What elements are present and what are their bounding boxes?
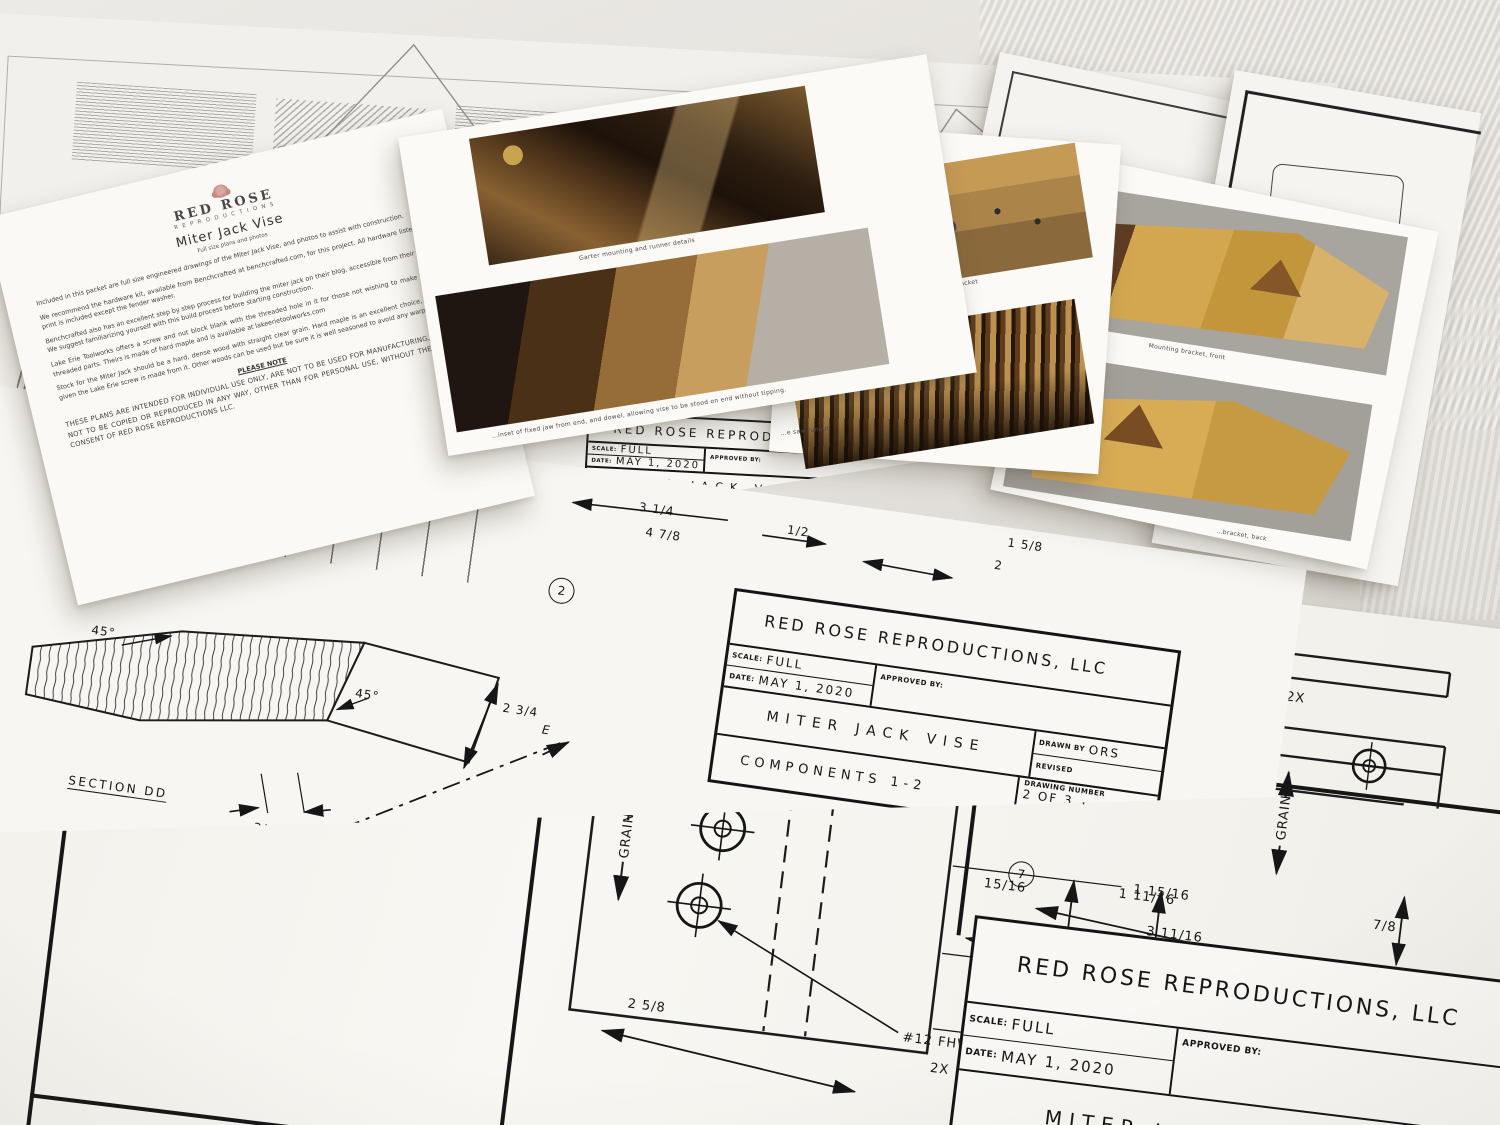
tb-drawn-label: DRAWN BY <box>1038 739 1085 753</box>
tb-date-value: MAY 1, 2020 <box>1000 1048 1117 1080</box>
tb-date-label: DATE: <box>729 672 755 683</box>
tb-scale-label: SCALE: <box>969 1014 1008 1029</box>
tb-drawn-value: ORS <box>1088 743 1121 761</box>
bracket-wood <box>1071 195 1397 365</box>
dim-7-8: 7/8 <box>1372 918 1398 936</box>
screw-callout-line2: 2X <box>929 1061 950 1078</box>
panel-divider <box>30 1093 500 1125</box>
tb-drawn-label: DRAWN BY <box>839 484 877 492</box>
tb-scale-value: FULL <box>1010 1015 1056 1038</box>
dim-1-5-8: 1 5/8 <box>1007 535 1044 554</box>
tb-scale-label: SCALE: <box>592 445 617 452</box>
tb-date-label: DATE: <box>965 1047 998 1061</box>
tb-scale-value: FULL <box>620 444 653 457</box>
tb-revised-label: REVISED <box>1035 762 1073 775</box>
tb-scale-label: SCALE: <box>732 651 763 663</box>
tb-approved-label: APPROVED BY: <box>1182 1038 1263 1058</box>
tb-revised-label: REVISED <box>838 496 868 504</box>
tb-approved-label: APPROVED BY: <box>710 455 761 464</box>
dim-2: 2 <box>993 558 1004 573</box>
photo-of-woodworking-plans: Red Rose Reproductions, LLC SCALE:FULL D… <box>0 0 1500 1125</box>
tb-drawn-value: ORS <box>880 483 908 495</box>
tb-scale-value: FULL <box>766 653 805 672</box>
part-balloon-2: 2 <box>547 576 576 605</box>
dimension-lines <box>564 468 990 596</box>
tb-approved-label: APPROVED BY: <box>880 673 944 690</box>
tb-date-label: DATE: <box>591 457 612 464</box>
